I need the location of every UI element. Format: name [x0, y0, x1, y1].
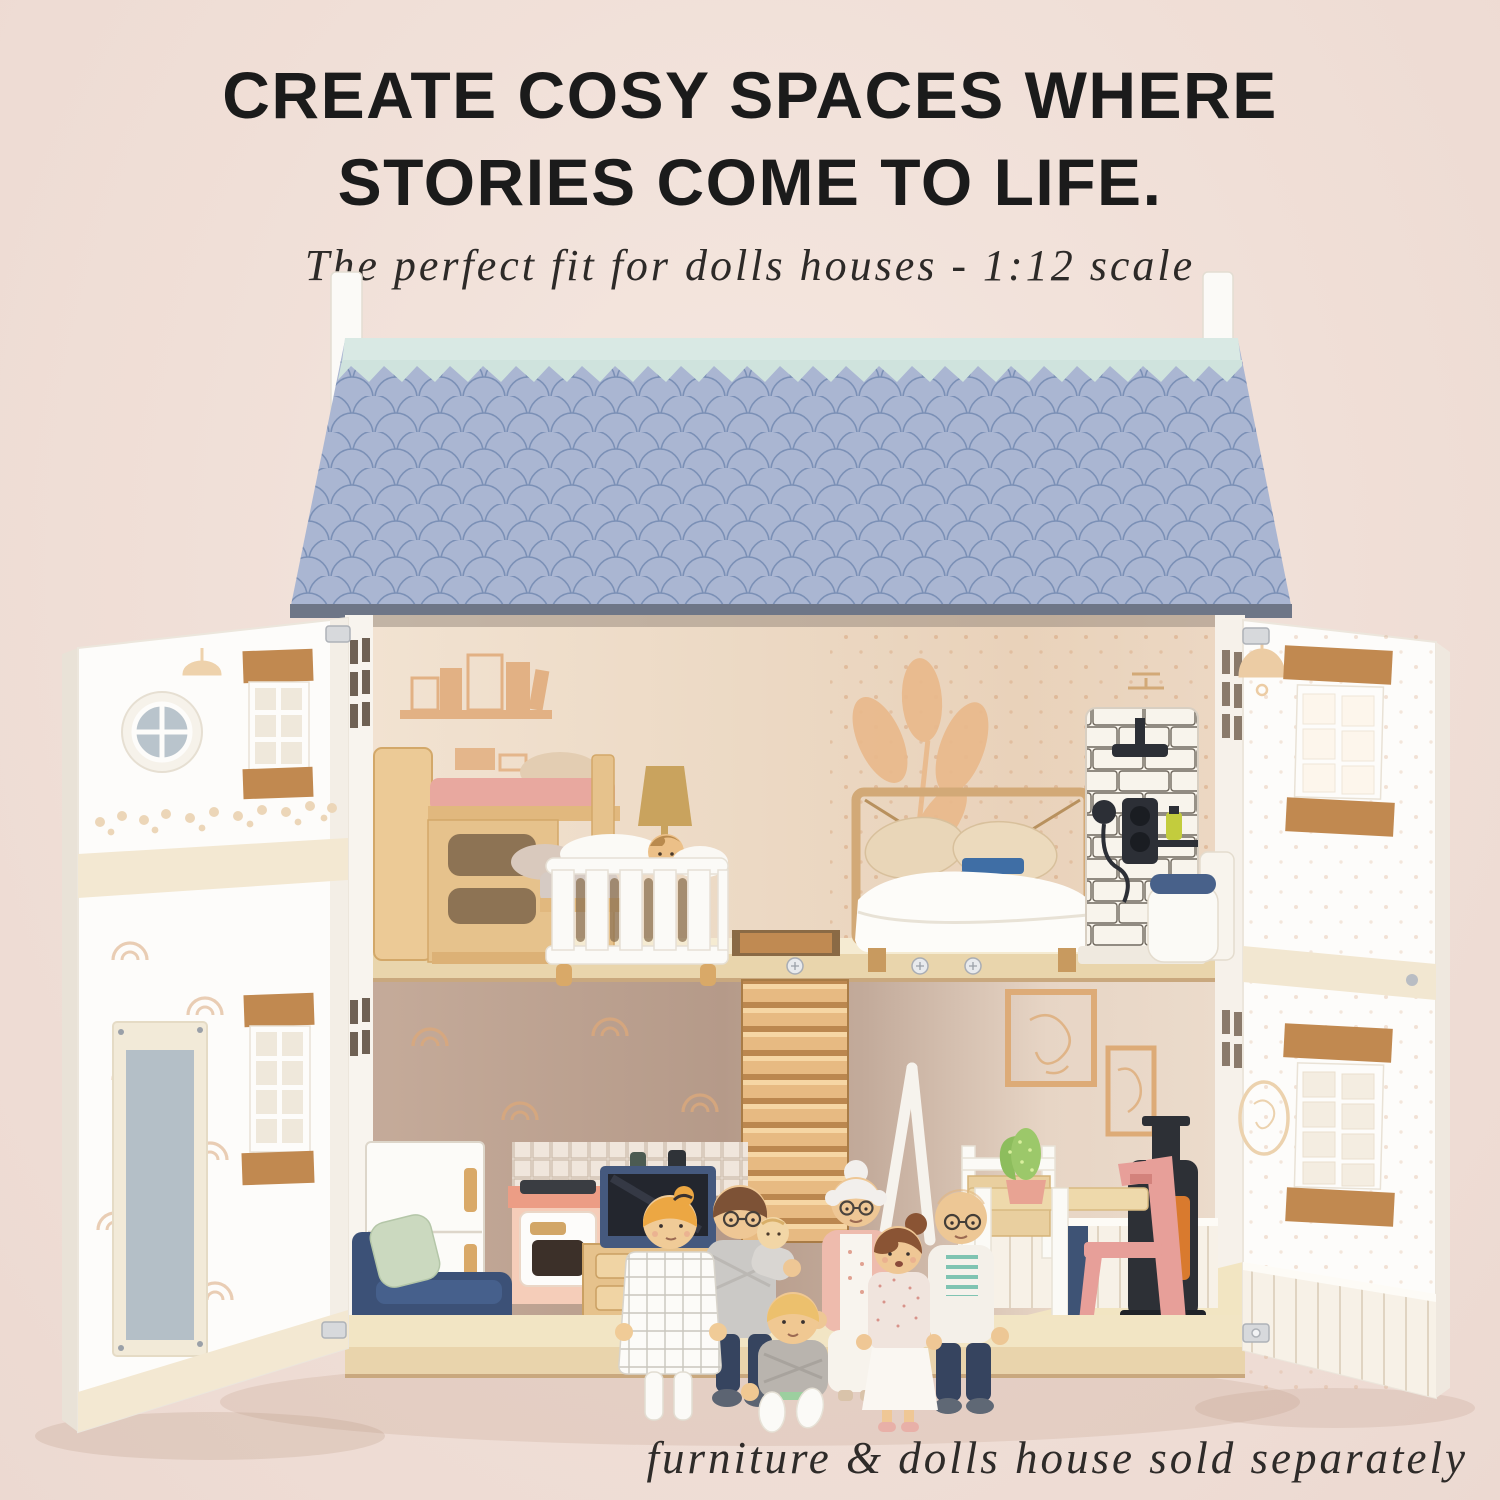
loft-hatch: [732, 930, 840, 956]
porthole-window: [122, 692, 202, 772]
baby-cot: [546, 834, 728, 986]
window-upper-left-door: [242, 649, 313, 799]
disclaimer-text: furniture & dolls house sold separately: [646, 1432, 1468, 1484]
product-image: CREATE COSY SPACES WHERE STORIES COME TO…: [0, 0, 1500, 1500]
window-lower-right-door: [1283, 1023, 1395, 1227]
front-door: [113, 1022, 207, 1356]
dollhouse-scene: [0, 0, 1500, 1500]
window-lower-left-door: [241, 993, 314, 1185]
roof: [290, 338, 1292, 618]
side-wall-right: [1215, 615, 1245, 1315]
window-upper-right-door: [1283, 645, 1395, 837]
shampoo-bottle: [1166, 812, 1182, 840]
door-right: [1240, 620, 1450, 1398]
door-left: [62, 618, 350, 1432]
blue-book: [962, 858, 1024, 874]
